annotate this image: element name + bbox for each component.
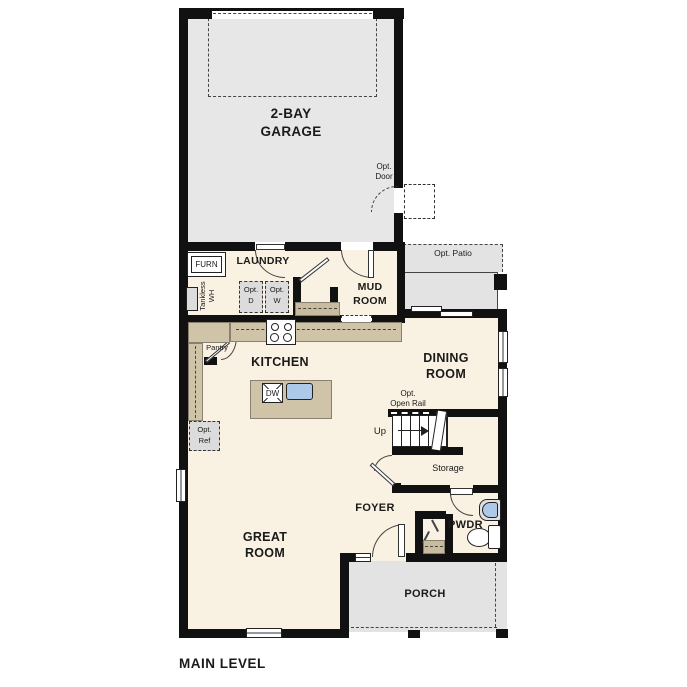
tankless-wh-label: Tankless WH [198,276,218,316]
opt-door-landing [404,184,435,219]
up-label: Up [370,426,390,438]
tankless-wh-unit [186,287,198,311]
patio-floor [403,272,498,309]
mudroom-door-leaf [368,250,374,278]
foyer-pwdr-wall-left [392,485,450,493]
sliding-door-panel-inner [440,311,473,317]
patio-corner-stub [494,274,507,290]
laundry-label: LAUNDRY [227,255,299,269]
closet-top-wall [419,511,446,519]
opt-ref-box: Opt. Ref [189,421,220,451]
porch-label: PORCH [390,587,460,601]
opt-open-rail-dashes [391,412,429,414]
dining-room-label: DINING ROOM [396,350,496,383]
opt-open-rail-label: Opt. Open Rail [380,389,436,409]
closet-left-wall [415,511,423,556]
burner-icon [283,333,292,342]
dishwasher-label: DW [265,389,280,398]
foyer-label: FOYER [345,501,405,515]
opt-washer-box: Opt. W [265,281,289,313]
plan-title: MAIN LEVEL [179,655,319,673]
kitchen-counter-top [230,322,402,342]
dining-window-2 [498,368,508,397]
furnace-box: FURN [187,252,226,277]
understair-wall [392,447,463,455]
opt-dryer-box: Opt. D [239,281,263,313]
kitchen-sink [286,383,313,400]
burner-icon [271,323,279,331]
dishwasher-box: DW [262,383,283,403]
powder-door-leaf [450,488,473,495]
mud-vestibule-stub [330,287,338,302]
closet-shelf [423,540,445,554]
furnace-label: FURN [195,260,217,269]
stove-cooktop [266,319,296,345]
upper-cabinet-dashed [236,329,396,330]
porch-edge-dashed [351,627,497,628]
burner-icon [284,323,292,331]
mudroom-bench-dashed [298,308,337,309]
garage-top-wall-left [179,8,212,19]
dining-window-1 [498,331,508,363]
powder-sink [482,502,498,518]
left-exterior-wall [179,8,188,638]
floor-plan: FURN Tankless WH Opt. D Opt. W Opt. Ref … [0,0,687,687]
mud-room-label: MUD ROOM [338,281,402,308]
storage-label: Storage [418,463,478,474]
great-room-left-window [176,469,186,502]
garage-bottom-wall-a [179,242,255,251]
opt-patio-label: Opt. Patio [403,248,503,259]
garage-bottom-wall-b [285,242,341,251]
porch-post-right [496,629,508,638]
garage-door-header [212,8,373,11]
foyer-pwdr-wall-right [473,485,507,493]
laundry-door-leaf [256,244,285,250]
powder-room-label: PWDR [448,518,490,532]
stair-arrow-shaft [398,430,422,431]
sliding-door-panel-outer [411,306,442,312]
great-room-label: GREAT ROOM [215,529,315,562]
entry-sidelight-window [355,553,371,562]
pantry-label: Pantry [200,343,234,352]
garage-right-wall-upper [394,8,403,188]
mudroom-bench [295,302,340,316]
great-room-bottom-window [246,628,282,638]
porch-post-middle [408,630,420,638]
burner-icon [270,333,279,342]
garage-label: 2-BAY GARAGE [211,105,371,140]
stair-arrow-head [421,426,429,436]
porch-left-wall [340,557,349,638]
front-door-leaf [398,524,405,557]
garage-door-zone-dashed [208,13,377,97]
kitchen-corner-counter [188,322,230,343]
porch-side-dashed [495,563,496,627]
opt-door-label: Opt. Door [359,162,409,182]
kitchen-label: KITCHEN [230,354,330,370]
closet-shelf-dashed [425,546,443,547]
left-cabinet-dashed [195,346,196,418]
